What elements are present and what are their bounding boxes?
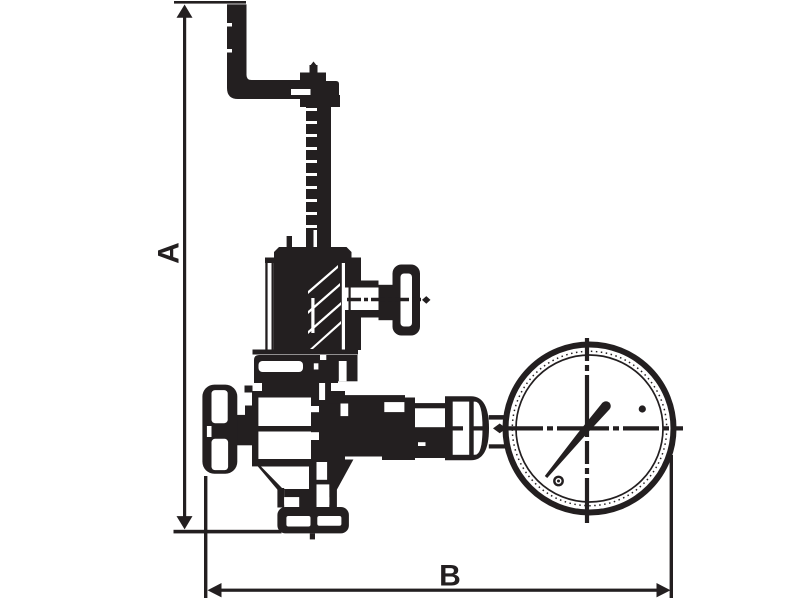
svg-text:B: B	[439, 560, 461, 593]
svg-text:A: A	[153, 242, 186, 264]
